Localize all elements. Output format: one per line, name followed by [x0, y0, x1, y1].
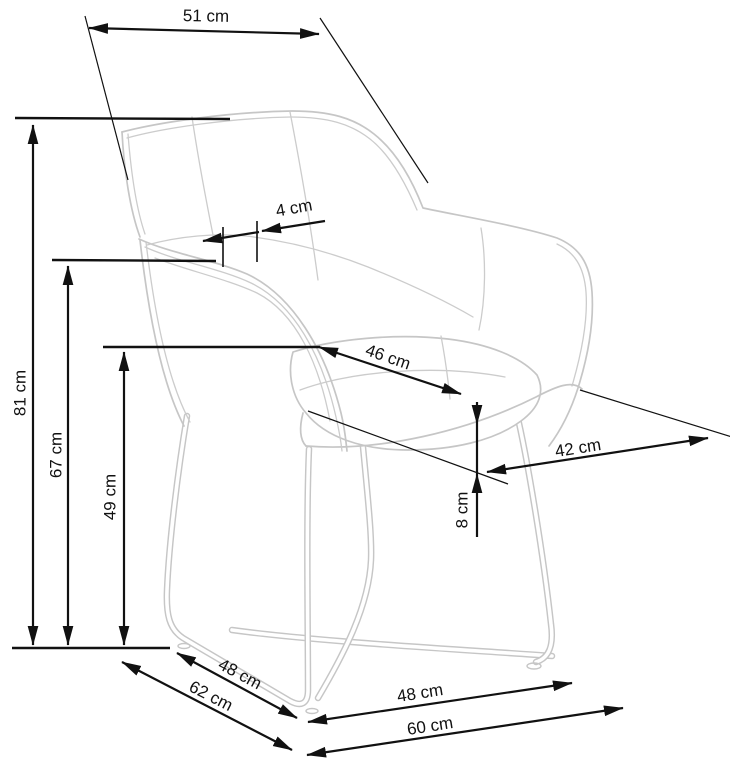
label-cushion-thickness: 8 cm	[453, 492, 472, 529]
base-crossbar-front-core	[318, 447, 371, 698]
left-side-edge-inner	[146, 242, 190, 422]
ref-line-backrest-top	[15, 118, 230, 119]
label-armrest-height: 67 cm	[47, 432, 66, 478]
seat-shell-front-corner	[301, 413, 306, 446]
chair-foot-left	[178, 644, 190, 649]
ext-51-left	[85, 16, 128, 180]
dim-line-62	[122, 662, 292, 750]
backrest-inner-top-edge	[127, 117, 417, 210]
label-backrest-top-width: 51 cm	[183, 6, 230, 26]
base-left-runner	[167, 416, 309, 704]
dim-line-51	[89, 28, 319, 34]
dim-line-4-outer	[262, 221, 325, 231]
chair-dimension-diagram: 51 cm 4 cm 81 cm 67 cm 49 cm 46 cm 42 cm…	[0, 0, 730, 759]
label-total-height: 81 cm	[11, 370, 30, 416]
backrest-right-edge-inner	[557, 244, 586, 386]
ref-line-armrest	[52, 260, 216, 261]
label-seat-height: 49 cm	[101, 474, 120, 520]
left-side-edge	[140, 240, 184, 426]
backrest-left-edge	[122, 132, 140, 237]
chair-drawing	[122, 111, 592, 714]
backrest-seam-right	[479, 228, 485, 330]
base-left-runner-core	[167, 416, 309, 704]
seat-cushion-outline	[291, 337, 541, 450]
backrest-left-edge-inner	[128, 134, 145, 234]
chair-foot-front	[306, 709, 318, 714]
armrest-left-top-edge	[147, 235, 473, 317]
base-right-leg	[516, 410, 552, 662]
ext-51-right	[320, 18, 428, 183]
ext-42-back	[580, 390, 730, 437]
diagram-canvas: 51 cm 4 cm 81 cm 67 cm 49 cm 46 cm 42 cm…	[0, 0, 730, 759]
base-crossbar-front	[318, 447, 371, 698]
backrest-seam-left	[192, 117, 214, 240]
label-seat-depth: 42 cm	[554, 435, 603, 461]
label-armrest-pad-width: 4 cm	[274, 195, 314, 220]
